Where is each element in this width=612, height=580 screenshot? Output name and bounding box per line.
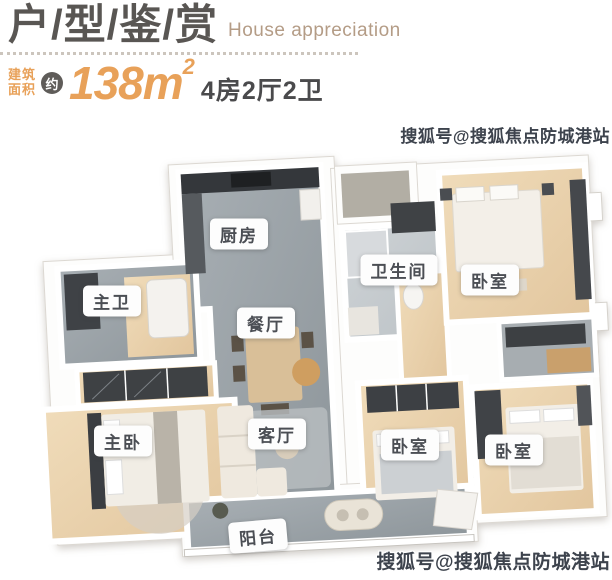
- room-label-bedroom-middle: 卧室: [381, 430, 439, 461]
- area-prefix-line2: 面积: [8, 83, 36, 98]
- room-label-living: 客厅: [248, 419, 306, 450]
- approx-badge: 约: [41, 72, 63, 94]
- room-label-master-bedroom: 主卧: [94, 426, 152, 457]
- area-row: 建筑 面积 约 138m 2 4房2厅2卫: [8, 60, 324, 106]
- layout-spec: 4房2厅2卫: [201, 71, 324, 107]
- watermark-bottom: 搜狐号@搜狐焦点防城港站: [376, 547, 610, 574]
- room-label-bedroom-bottom-right: 卧室: [485, 435, 543, 466]
- plan-group: [30, 150, 612, 564]
- room-label-bedroom-top-right: 卧室: [461, 265, 519, 296]
- room-label-dining: 餐厅: [237, 308, 295, 339]
- title-row: 户/型/鉴/赏 House appreciation: [8, 2, 401, 48]
- area-exponent: 2: [183, 54, 195, 80]
- area-prefix-line1: 建筑: [8, 68, 36, 83]
- area-prefix: 建筑 面积: [8, 68, 36, 98]
- corridor-floor: [396, 271, 450, 383]
- room-label-kitchen: 厨房: [210, 219, 268, 250]
- room-label-balcony: 阳台: [228, 518, 288, 554]
- watermark-top: 搜狐号@搜狐焦点防城港站: [400, 122, 610, 147]
- page-subtitle: House appreciation: [228, 20, 401, 42]
- page-title: 户/型/鉴/赏: [8, 2, 218, 48]
- area-value: 138m: [69, 60, 183, 106]
- dotted-divider: [0, 52, 358, 55]
- room-label-master-bath: 主卫: [83, 286, 141, 317]
- floorplan-render: [0, 150, 612, 580]
- room-label-bathroom: 卫生间: [361, 255, 438, 286]
